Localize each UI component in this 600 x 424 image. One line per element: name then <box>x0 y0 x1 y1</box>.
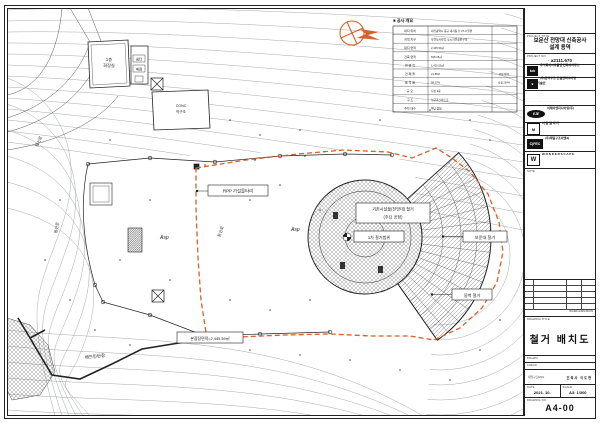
sheet-border <box>4 5 596 419</box>
drawing-sheet: 1층 화장실 쉼터 매점 CONC 막구조 <box>0 0 600 424</box>
